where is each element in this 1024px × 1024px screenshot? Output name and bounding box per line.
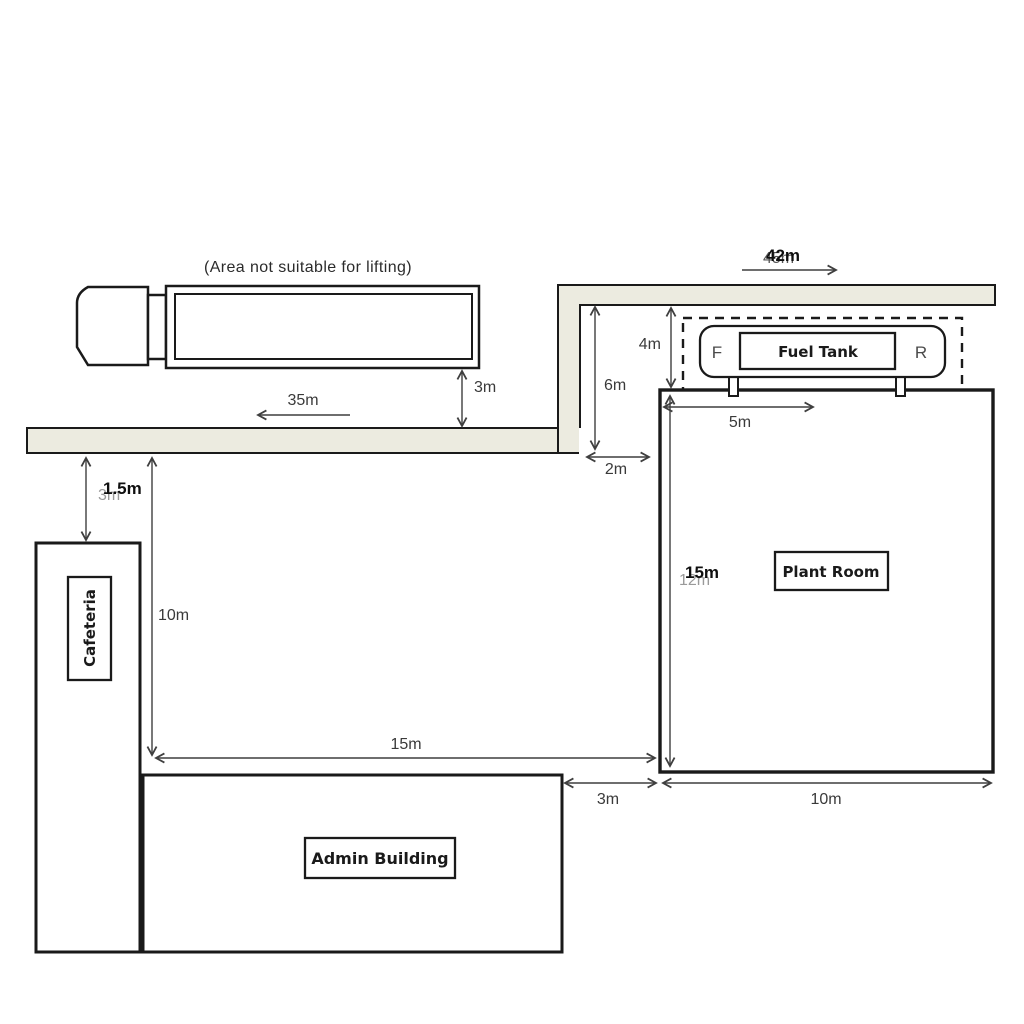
dim-10m-left-label: 10m [158, 607, 189, 624]
dim-35m-label: 35m [287, 392, 318, 409]
dim-10m-bottom-label: 10m [810, 791, 841, 808]
dim-5m-label: 5m [729, 414, 751, 431]
dim-4m-label: 4m [639, 336, 661, 353]
plant-room-label: Plant Room [782, 563, 879, 581]
dim-plant-depth-label: 15m [685, 563, 719, 582]
fuel-tank-rear-label: R [915, 343, 927, 362]
site-plan-diagram: (Area not suitable for lifting) 35m 3m 3… [0, 0, 1024, 1024]
area-note-label: (Area not suitable for lifting) [204, 259, 412, 276]
road-lower [27, 428, 578, 453]
fuel-tank-leg-right [896, 377, 905, 396]
truck-hitch [148, 295, 166, 359]
road-connector [559, 286, 579, 452]
dim-6m-label: 6m [604, 377, 626, 394]
dim-road-to-cafeteria-label: 1.5m [103, 479, 142, 498]
road-upper [558, 285, 995, 305]
fuel-tank-front-label: F [712, 343, 722, 362]
truck-cab [77, 287, 148, 365]
dim-2m-label: 2m [605, 461, 627, 478]
dim-3m-bottom-label: 3m [597, 791, 619, 808]
admin-label: Admin Building [311, 849, 448, 868]
site-plan-page: (Area not suitable for lifting) 35m 3m 3… [0, 0, 1024, 1024]
truck-trailer-inner [175, 294, 472, 359]
fuel-tank-label: Fuel Tank [778, 343, 859, 361]
dim-15m-bottom-label: 15m [390, 736, 421, 753]
fuel-tank-leg-left [729, 377, 738, 396]
cafeteria-label: Cafeteria [81, 589, 99, 667]
dim-3m-truck-label: 3m [474, 379, 496, 396]
dim-42m-label: 42m [766, 246, 800, 265]
